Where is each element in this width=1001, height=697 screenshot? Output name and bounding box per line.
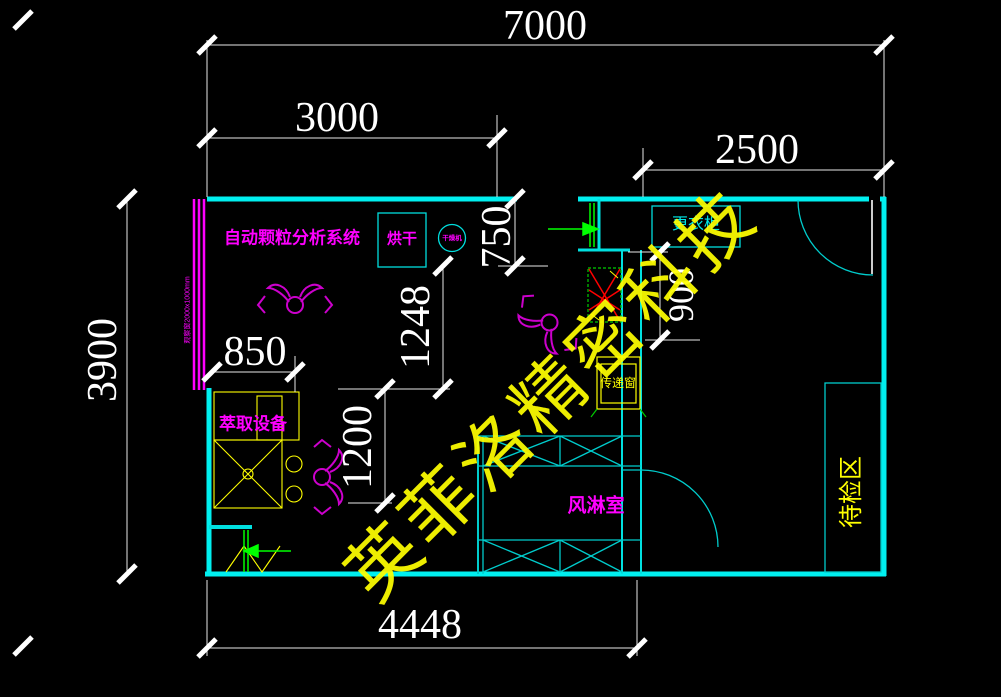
- label-extraction-equipment: 萃取设备: [219, 416, 287, 433]
- label-particle-system: 自动颗粒分析系统: [224, 230, 360, 247]
- dim-mid-upper: 1248: [395, 285, 437, 369]
- wall-notch: [869, 195, 880, 203]
- dim-mid-lower: 1200: [337, 405, 379, 489]
- dim-right-section: 2500: [715, 129, 799, 171]
- dim-drying-depth: 750: [476, 206, 518, 269]
- label-dryer: 干燥机: [442, 236, 462, 243]
- cad-viewport[interactable]: 7000 3000 2500 3900 4448 850 750 1248 12…: [0, 0, 1001, 697]
- dimension-ticks: [14, 11, 893, 657]
- dim-total-height: 3900: [82, 318, 124, 402]
- label-observation-window: 观察窗2000x1000mm: [185, 276, 192, 343]
- label-air-shower: 风淋室: [567, 497, 624, 516]
- label-inspection-area: 待检区: [840, 456, 864, 528]
- label-drying: 烘干: [387, 232, 417, 247]
- dim-left-section: 3000: [295, 97, 379, 139]
- drawing-layer: [0, 0, 1001, 697]
- observation-window-lines: [194, 199, 204, 390]
- dim-total-width: 7000: [503, 5, 587, 47]
- dim-extraction-width: 850: [224, 331, 287, 373]
